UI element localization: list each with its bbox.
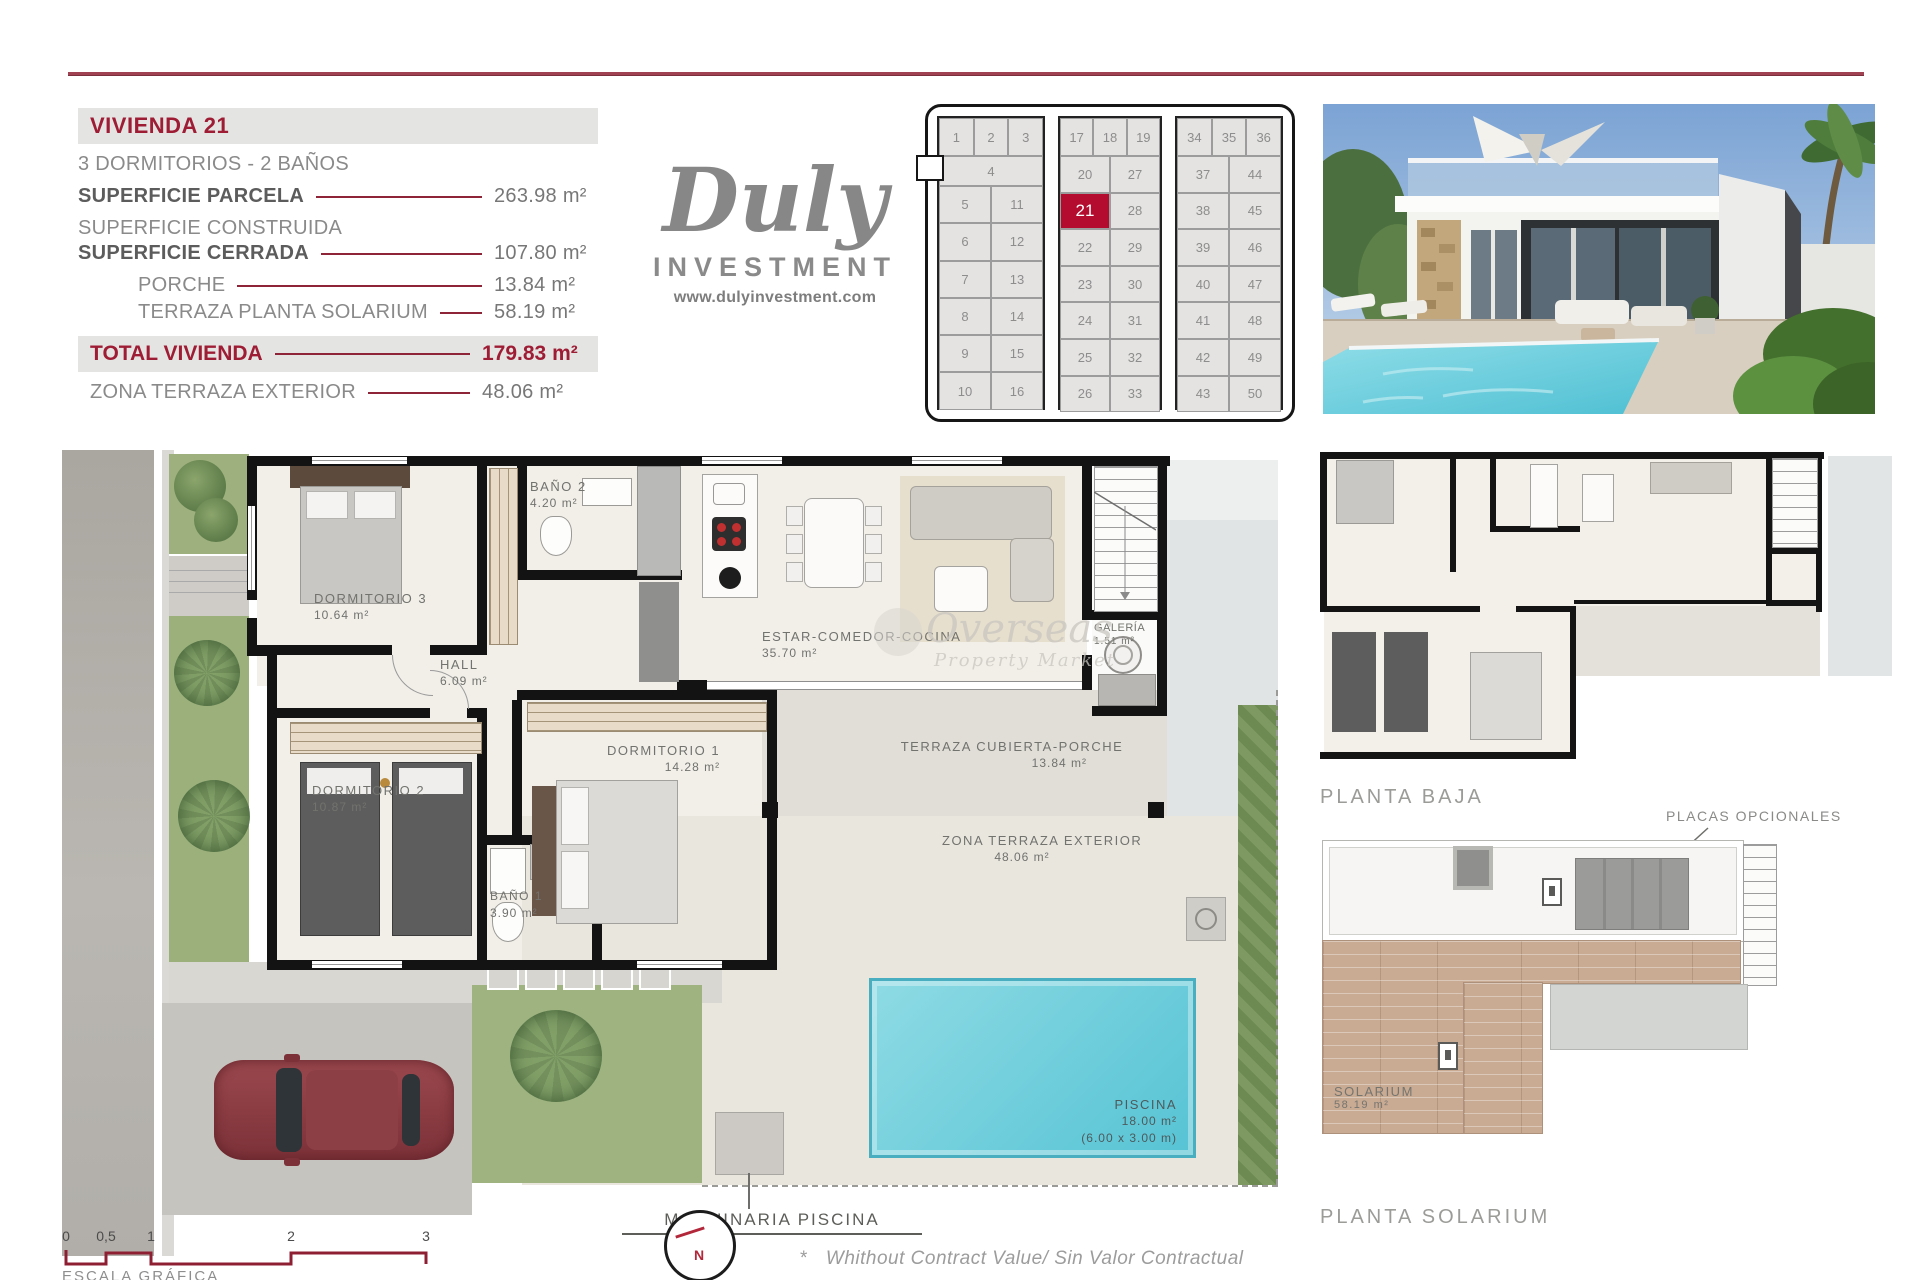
plot-cell-10: 10 [939, 372, 991, 409]
window [637, 961, 722, 968]
plot-cell-39: 39 [1177, 229, 1229, 266]
curb [154, 450, 162, 1256]
plot-cell-2: 2 [974, 118, 1009, 156]
dining-table [804, 498, 864, 588]
pool-machinery-pad [715, 1112, 784, 1175]
toilet [540, 516, 572, 556]
plot-cell-9: 9 [939, 335, 991, 372]
machinery-leader [748, 1173, 750, 1209]
wardrobe [527, 702, 767, 732]
plot-cell-33: 33 [1110, 376, 1160, 413]
logo-website: www.dulyinvestment.com [645, 289, 905, 307]
planta-solarium-label: PLANTA SOLARIUM [1320, 1206, 1550, 1229]
palm-tree [178, 780, 250, 852]
window [912, 457, 1002, 464]
solar-panels [1575, 858, 1689, 930]
stairs-break-line [1094, 466, 1156, 610]
palm-tree [174, 640, 240, 706]
porch-post [762, 802, 778, 818]
plot-cell-44: 44 [1229, 156, 1281, 193]
plot-cell-30: 30 [1110, 266, 1160, 303]
plot-cell-50: 50 [1229, 376, 1281, 413]
chair [865, 506, 882, 526]
plot-cell-23: 23 [1060, 266, 1110, 303]
plot-cell-8: 8 [939, 298, 991, 335]
scale-numbers: 0 0,5 1 2 3 [62, 1228, 442, 1244]
plot-cell-4: 4 [939, 156, 1043, 186]
surface-row: PORCHE 13.84 m² [78, 274, 598, 297]
mini-bed-dark [1384, 632, 1428, 732]
logo-brand: Duly [645, 150, 905, 250]
hedge [1238, 705, 1278, 1185]
vivienda-title: VIVIENDA 21 [90, 113, 229, 138]
north-needle [675, 1226, 704, 1238]
wall [467, 708, 487, 718]
tree [194, 498, 238, 542]
leader-line [275, 353, 470, 356]
chair [865, 562, 882, 582]
plot-cell-7: 7 [939, 261, 991, 298]
leader-line [368, 392, 470, 394]
plot-map: 12345116127138149151016 1718192027212822… [925, 104, 1295, 422]
wardrobe [290, 722, 482, 754]
plot-cell-43: 43 [1177, 376, 1229, 413]
wall [1092, 706, 1167, 716]
plot-cell-29: 29 [1110, 229, 1160, 266]
side-yard-upper [1167, 460, 1278, 520]
skylight [1453, 846, 1493, 890]
plot-cell-40: 40 [1177, 266, 1229, 303]
plot-cell-18: 18 [1093, 118, 1126, 156]
brochure-page: VIVIENDA 21 3 DORMITORIOS - 2 BAÑOS SUPE… [0, 0, 1920, 1280]
mini-porch [1574, 606, 1820, 676]
wardrobe [489, 468, 518, 645]
plot-cell-47: 47 [1229, 266, 1281, 303]
surface-row: SUPERFICIE CONSTRUIDA [78, 217, 598, 240]
solarium-stairs [1743, 844, 1777, 986]
wall [477, 718, 487, 970]
plot-cell-25: 25 [1060, 339, 1110, 376]
plot-cell-14: 14 [991, 298, 1043, 335]
wall [477, 456, 487, 655]
wall [1157, 456, 1167, 716]
car [214, 1056, 454, 1166]
double-bed [300, 486, 402, 604]
palm-tree [510, 1010, 602, 1102]
plot-cell-34: 34 [1177, 118, 1212, 156]
entry-path [169, 554, 249, 620]
plot-cell-17: 17 [1060, 118, 1093, 156]
plot-cell-37: 37 [1177, 156, 1229, 193]
plot-cell-20: 20 [1060, 156, 1110, 193]
plot-cell-48: 48 [1229, 302, 1281, 339]
room-label-piscina: PISCINA 18.00 m² (6.00 x 3.00 m) [1037, 1096, 1177, 1147]
plot-cell-19: 19 [1127, 118, 1160, 156]
plot-cell-15: 15 [991, 335, 1043, 372]
room-label-bano2: BAÑO 24.20 m² [530, 478, 587, 512]
mini-bed-dark [1332, 632, 1376, 732]
wall [512, 700, 522, 840]
plot-boundary-right [1276, 690, 1278, 1185]
terrace-row: ZONA TERRAZA EXTERIOR 48.06 m² [78, 381, 598, 404]
company-logo: Duly INVESTMENT www.dulyinvestment.com [645, 150, 905, 307]
room-label-dorm2: DORMITORIO 210.87 m² [312, 782, 425, 816]
outdoor-shower [1186, 897, 1226, 941]
bathroom-sink [582, 478, 632, 506]
leader-line [440, 312, 482, 314]
room-label-terraza: ZONA TERRAZA EXTERIOR48.06 m² [942, 832, 1102, 866]
surface-row: SUPERFICIE PARCELA 263.98 m² [78, 185, 598, 208]
wall [1082, 456, 1092, 620]
wall [267, 646, 277, 970]
plot-cell-26: 26 [1060, 376, 1110, 413]
kitchen-units [639, 582, 679, 682]
plot-cell-41: 41 [1177, 302, 1229, 339]
plot-cell-42: 42 [1177, 339, 1229, 376]
scale-label: ESCALA GRÁFICA [62, 1268, 219, 1280]
plot-cell-32: 32 [1110, 339, 1160, 376]
mini-side-yard [1828, 456, 1892, 676]
window [312, 961, 402, 968]
villa-photo-art [1323, 104, 1875, 414]
shower [637, 466, 681, 576]
roof-vent [1438, 1042, 1458, 1070]
mini-stairs [1772, 458, 1818, 548]
plot-cell-35: 35 [1212, 118, 1247, 156]
plot-cell-5: 5 [939, 186, 991, 223]
mini-bed [1336, 460, 1394, 524]
plot-boundary [702, 1185, 1278, 1187]
disclaimer: *Whithout Contract Value/ Sin Valor Cont… [800, 1248, 1244, 1270]
plot-section-left: 12345116127138149151016 [937, 116, 1045, 410]
north-arrow: N [664, 1210, 736, 1280]
room-label-hall: HALL6.09 m² [440, 656, 488, 690]
logo-word: INVESTMENT [645, 252, 905, 283]
wall [677, 680, 707, 690]
plot-cell-49: 49 [1229, 339, 1281, 376]
leader-line [321, 253, 482, 255]
room-label-porche: TERRAZA CUBIERTA-PORCHE13.84 m² [897, 738, 1127, 772]
plot-section-middle: 1718192027212822292330243125322633 [1058, 116, 1162, 410]
room-label-bano1: BAÑO 13.90 m² [490, 888, 543, 922]
mini-island [1530, 464, 1558, 528]
total-row: TOTAL VIVIENDA 179.83 m² [78, 336, 598, 372]
plot-annex-square [916, 155, 944, 181]
plot-cell-13: 13 [991, 261, 1043, 298]
plot-cell-28: 28 [1110, 193, 1160, 230]
plot-cell-1: 1 [939, 118, 974, 156]
wood-deck [1463, 940, 1741, 984]
wall [767, 690, 777, 970]
wall [247, 645, 392, 655]
bedrooms-baths: 3 DORMITORIOS - 2 BAÑOS [78, 153, 598, 176]
plot-cell-45: 45 [1229, 193, 1281, 230]
plot-cell-3: 3 [1008, 118, 1043, 156]
plot-section-right: 3435363744384539464047414842494350 [1175, 116, 1283, 410]
top-rule [68, 72, 1864, 76]
plot-cell-38: 38 [1177, 193, 1229, 230]
window [702, 457, 782, 464]
plot-cell-31: 31 [1110, 302, 1160, 339]
porch-post [1148, 802, 1164, 818]
watermark-brand: Overseas [926, 606, 1113, 652]
wall [517, 690, 777, 700]
double-bed [556, 780, 678, 924]
plot-cell-22: 22 [1060, 229, 1110, 266]
plot-cell-46: 46 [1229, 229, 1281, 266]
sliding-glass-window [707, 681, 1082, 690]
room-label-dorm3: DORMITORIO 310.64 m² [314, 590, 427, 624]
scale-bar [62, 1244, 442, 1268]
plot-cell-21: 21 [1060, 193, 1110, 230]
plot-cell-36: 36 [1246, 118, 1281, 156]
vivienda-header: VIVIENDA 21 [78, 108, 598, 144]
villa-photo [1323, 104, 1875, 414]
info-panel: VIVIENDA 21 3 DORMITORIOS - 2 BAÑOS SUPE… [78, 108, 598, 404]
plot-cell-24: 24 [1060, 302, 1110, 339]
roof-vent [1542, 878, 1562, 906]
sofa [910, 486, 1052, 540]
mini-table [1582, 474, 1614, 522]
kitchen-island [702, 474, 758, 598]
chair [786, 506, 803, 526]
headboard [290, 466, 410, 488]
mini-plan-baja [1320, 452, 1895, 774]
plot-cell-16: 16 [991, 372, 1043, 409]
plot-cell-27: 27 [1110, 156, 1160, 193]
mini-bed [1470, 652, 1542, 740]
leader-line [237, 285, 482, 287]
chair [786, 562, 803, 582]
room-label-dorm1: DORMITORIO 114.28 m² [607, 742, 720, 776]
chair [865, 534, 882, 554]
window [312, 457, 407, 464]
leader-line [316, 196, 482, 198]
watermark-tagline: Property Market [934, 650, 1116, 671]
plot-cell-6: 6 [939, 223, 991, 260]
wall [267, 708, 430, 718]
concrete-roof [1550, 984, 1748, 1050]
surface-row: TERRAZA PLANTA SOLARIUM 58.19 m² [78, 301, 598, 324]
surface-row: SUPERFICIE CERRADA 107.80 m² [78, 242, 598, 265]
chair [786, 534, 803, 554]
plot-cell-11: 11 [991, 186, 1043, 223]
plot-cell-12: 12 [991, 223, 1043, 260]
window [248, 506, 255, 590]
mini-sofa [1650, 462, 1732, 494]
wall [517, 456, 527, 580]
main-floor-plan: MAQUINARIA PISCINA [62, 450, 1282, 1256]
street-road [62, 450, 154, 1256]
galeria-counter [1098, 674, 1156, 706]
sofa-chaise [1010, 538, 1054, 602]
wood-deck [1463, 982, 1543, 1134]
solarium-label: SOLARIUM 58.19 m² [1334, 1084, 1414, 1111]
solarium-plan: PLACAS OPCIONALES SOLARIUM 58.19 m² PLAN… [1320, 800, 1900, 1240]
watermark-logo [874, 608, 922, 656]
